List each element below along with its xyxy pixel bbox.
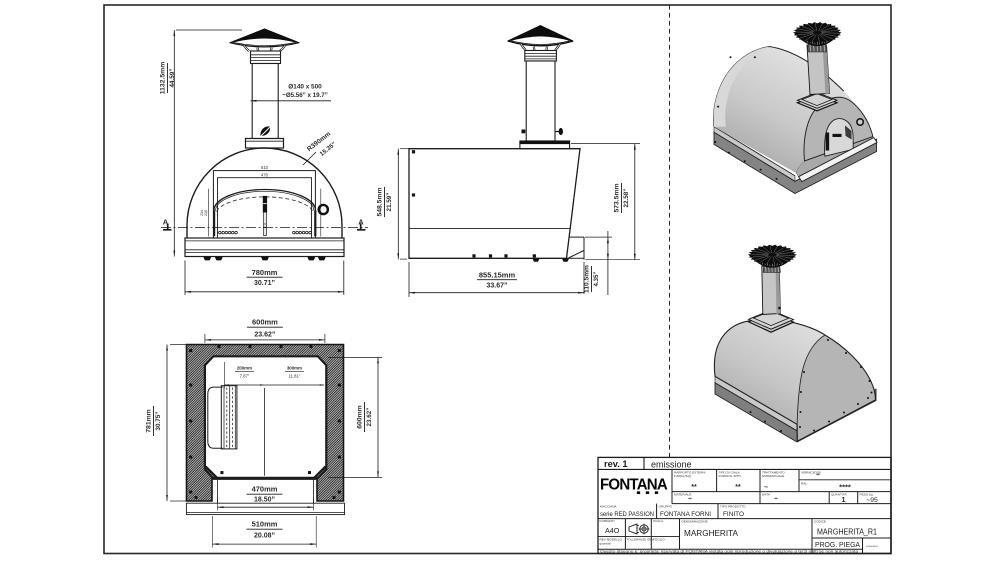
svg-text:FONTANA FORNI: FONTANA FORNI (660, 511, 711, 518)
svg-text:30.75”: 30.75” (155, 412, 162, 431)
svg-text:emissione: emissione (651, 459, 692, 469)
svg-text:CODICE: CODICE (814, 520, 826, 524)
svg-text:Ø140 x 500: Ø140 x 500 (288, 84, 322, 91)
svg-text:serie RED PASSION: serie RED PASSION (600, 511, 654, 518)
svg-text:FONTANA: FONTANA (600, 477, 668, 494)
svg-text:MATERIALE: MATERIALE (674, 493, 691, 497)
svg-text:**: ** (735, 484, 741, 491)
svg-text:23.62”: 23.62” (366, 408, 373, 427)
svg-text:RAL:: RAL: (801, 482, 808, 486)
svg-text:****: **** (839, 483, 851, 492)
svg-text:MARGHERITA_R1: MARGHERITA_R1 (817, 528, 877, 537)
svg-text:23.62”: 23.62” (254, 332, 275, 339)
svg-text:FORMATO: FORMATO (600, 519, 616, 523)
svg-text:GRUPPO: GRUPPO (659, 504, 673, 508)
svg-text:SCALA: SCALA (653, 519, 664, 523)
svg-text:SUPERFICIALE: SUPERFICIALE (762, 474, 784, 478)
svg-text:200mm: 200mm (237, 366, 252, 371)
svg-text:FOGLIO: FOGLIO (653, 538, 665, 542)
svg-text:TOLLERANZE GEN: TOLLERANZE GEN (627, 538, 654, 542)
svg-text:FINITO: FINITO (723, 511, 744, 518)
svg-text:781mm: 781mm (146, 409, 153, 432)
svg-text:MARGHERITA: MARGHERITA (684, 529, 739, 538)
svg-text:PROG. PIEGA: PROG. PIEGA (815, 540, 860, 549)
svg-text:FINI(AL/SQ): FINI(AL/SQ) (674, 474, 691, 478)
svg-text:21.59”: 21.59” (386, 193, 393, 212)
svg-text:600mm: 600mm (357, 405, 364, 428)
svg-text:11.81”: 11.81” (289, 374, 301, 379)
svg-text:20.08”: 20.08” (254, 533, 275, 540)
svg-text:300mm: 300mm (287, 366, 302, 371)
svg-text:470: 470 (261, 172, 269, 177)
svg-text:216: 216 (204, 210, 208, 216)
svg-text:FORNI/AL-MTO: FORNI/AL-MTO (719, 474, 742, 478)
svg-text:7.87”: 7.87” (240, 374, 250, 379)
svg-text:DENOMINAZIONE: DENOMINAZIONE (682, 520, 708, 524)
svg-text:44.59”: 44.59” (169, 69, 176, 88)
svg-text:rev. 1: rev. 1 (604, 459, 628, 469)
svg-text:33.67”: 33.67” (486, 283, 507, 290)
svg-text:quantita': quantita' (600, 542, 612, 546)
svg-text:30.71”: 30.71” (254, 280, 275, 287)
svg-text:573.5mm: 573.5mm (614, 183, 621, 212)
svg-text:4.35”: 4.35” (593, 272, 600, 287)
svg-text:1132.5mm: 1132.5mm (160, 62, 167, 95)
svg-text:22.58”: 22.58” (623, 189, 630, 208)
svg-text:Questo disegno e' proprieta' r: Questo disegno e' proprieta' riservata d… (600, 550, 858, 554)
svg-text:1: 1 (841, 495, 845, 504)
svg-text:TIPO PRODOTTO: TIPO PRODOTTO (720, 504, 746, 508)
svg-text:DATA: DATA (762, 493, 771, 497)
svg-text:~95: ~95 (866, 497, 878, 504)
svg-text:PESO Kg: PESO Kg (860, 493, 874, 497)
svg-text:600mm: 600mm (252, 318, 278, 327)
svg-text:780mm: 780mm (252, 268, 278, 277)
svg-text:470mm: 470mm (252, 485, 278, 494)
svg-text:**: ** (691, 484, 697, 491)
svg-text:510: 510 (261, 165, 269, 170)
svg-text:548.5mm: 548.5mm (377, 187, 384, 216)
svg-text:**: ** (816, 473, 820, 478)
svg-text:**: ** (774, 497, 778, 502)
svg-text:A4O: A4O (605, 526, 620, 535)
svg-text:REV MODELLO: REV MODELLO (600, 538, 623, 542)
svg-text:MACCHINA: MACCHINA (600, 504, 617, 508)
svg-text:**: ** (688, 497, 692, 502)
svg-text:~: ~ (764, 485, 768, 492)
svg-text:~Ø5.56” x 19.7”: ~Ø5.56” x 19.7” (282, 92, 328, 99)
svg-text:18.50”: 18.50” (254, 497, 275, 504)
svg-text:234: 234 (200, 210, 204, 216)
svg-text:110.5mm: 110.5mm (584, 265, 591, 293)
svg-text:855.15mm: 855.15mm (479, 271, 516, 280)
svg-text:*********: ********* (866, 545, 879, 549)
svg-text:510mm: 510mm (252, 520, 278, 529)
